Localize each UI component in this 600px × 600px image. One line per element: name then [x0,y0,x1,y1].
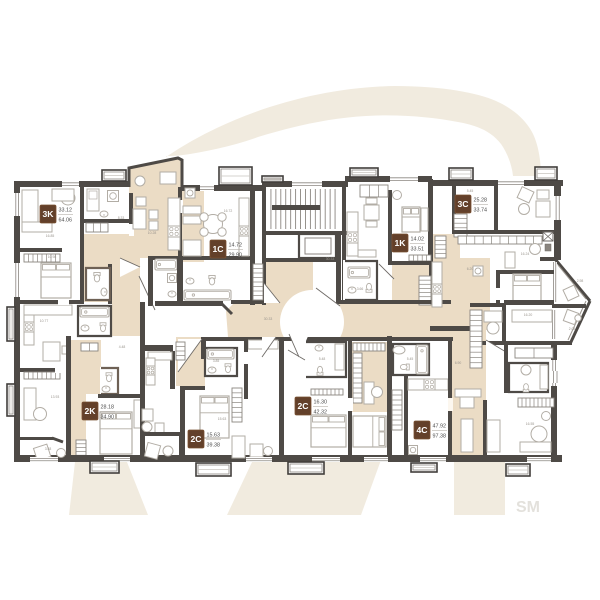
svg-text:2K: 2K [85,406,97,416]
svg-text:8.33: 8.33 [118,216,125,220]
svg-text:13.93: 13.93 [51,395,60,399]
svg-text:29.90: 29.90 [229,253,243,259]
svg-text:2.08: 2.08 [569,327,576,331]
svg-text:33.51: 33.51 [411,247,425,253]
svg-text:2C: 2C [191,434,202,444]
svg-text:5.45: 5.45 [467,189,474,193]
svg-text:47.92: 47.92 [433,424,447,430]
svg-text:6.20: 6.20 [467,267,474,271]
svg-text:3.85: 3.85 [213,359,220,363]
svg-text:10.77: 10.77 [40,319,49,323]
svg-text:14.02: 14.02 [411,237,425,243]
svg-text:3K: 3K [43,209,55,219]
svg-text:39.38: 39.38 [207,443,221,449]
svg-text:4.48: 4.48 [119,345,126,349]
svg-text:33.12: 33.12 [59,208,73,214]
svg-text:16.55: 16.55 [526,422,535,426]
svg-text:6.90: 6.90 [455,361,462,365]
svg-text:15.63: 15.63 [218,417,227,421]
svg-text:10.28: 10.28 [148,231,157,235]
svg-text:97.38: 97.38 [433,434,447,440]
svg-text:42.32: 42.32 [314,410,328,416]
svg-text:1K: 1K [395,238,407,248]
svg-text:3C: 3C [458,199,469,209]
svg-text:2C: 2C [298,401,309,411]
svg-text:64.06: 64.06 [59,218,73,224]
svg-text:25.28: 25.28 [474,198,488,204]
svg-text:16.30: 16.30 [314,400,328,406]
svg-text:3.48: 3.48 [45,447,52,451]
svg-text:10.98: 10.98 [48,255,57,259]
svg-text:16.85: 16.85 [46,234,55,238]
svg-text:30.33: 30.33 [264,317,273,321]
svg-text:28.18: 28.18 [101,405,115,411]
svg-text:16.72: 16.72 [224,209,233,213]
svg-text:5.45: 5.45 [407,357,414,361]
svg-text:2.98: 2.98 [577,279,584,283]
svg-text:16.24: 16.24 [521,252,530,256]
svg-text:3.66: 3.66 [357,287,364,291]
svg-text:4C: 4C [417,425,428,435]
svg-text:30.33: 30.33 [326,257,335,261]
svg-text:SM: SM [516,499,540,516]
svg-text:34.90: 34.90 [101,415,115,421]
svg-text:15.63: 15.63 [207,433,221,439]
svg-text:5.48: 5.48 [319,357,326,361]
svg-text:16.20: 16.20 [524,313,533,317]
svg-text:14.72: 14.72 [229,243,243,249]
svg-text:1C: 1C [213,244,224,254]
svg-text:33.74: 33.74 [474,208,488,214]
